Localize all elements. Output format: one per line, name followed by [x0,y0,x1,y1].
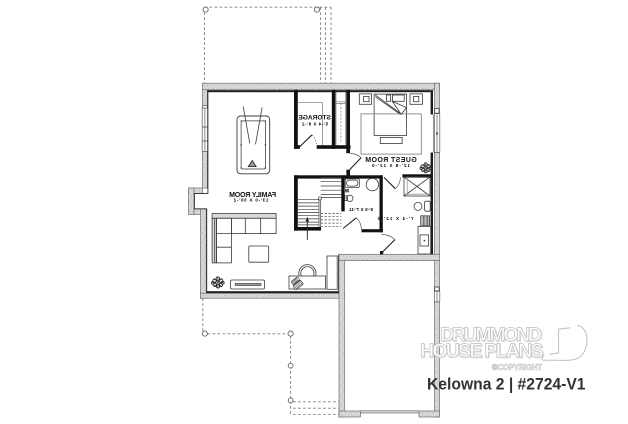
svg-text:Kelowna 2 | #2724-V1: Kelowna 2 | #2724-V1 [427,374,586,393]
svg-text:5'-5 X 7'-11: 5'-5 X 7'-11 [348,207,373,212]
svg-text:©COPYRIGHT: ©COPYRIGHT [492,363,542,372]
svg-text:12'-8 X 12'-0: 12'-8 X 12'-0 [371,163,410,168]
svg-text:HOUSE PLANS: HOUSE PLANS [420,340,544,362]
svg-text:7'-4 X 12'-0: 7'-4 X 12'-0 [377,216,414,221]
svg-text:13'-0 X 30'-2: 13'-0 X 30'-2 [233,198,268,203]
svg-text:5'-4 X 8'-2: 5'-4 X 8'-2 [301,121,328,126]
